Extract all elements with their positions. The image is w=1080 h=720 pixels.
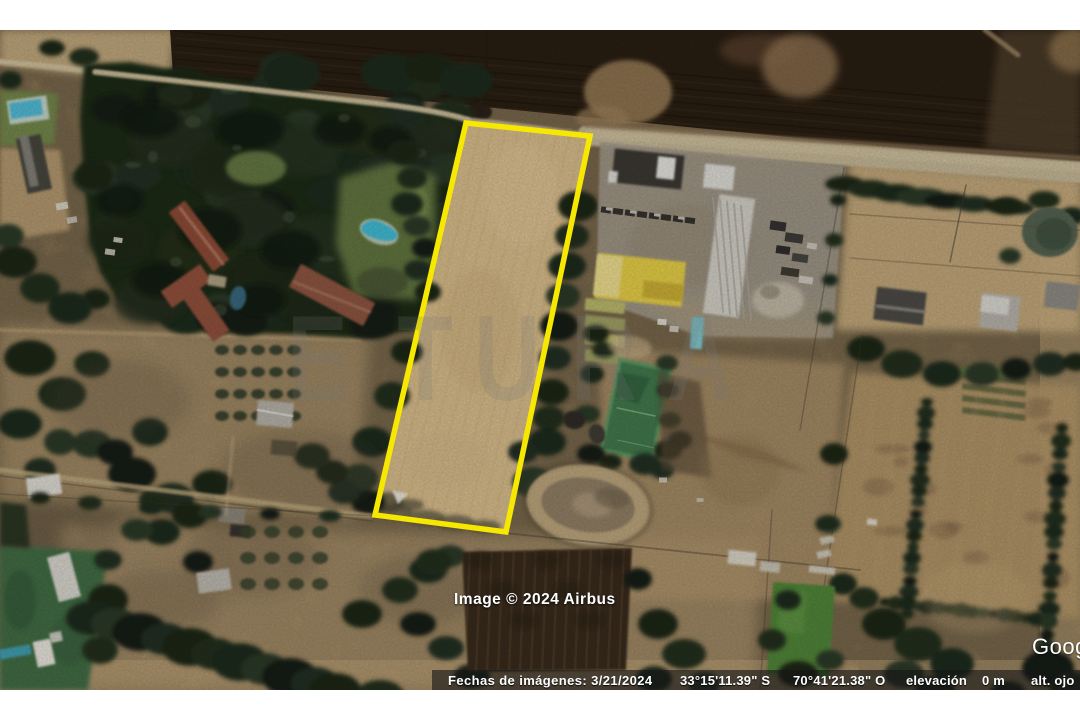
svg-text:elevación: elevación <box>906 673 967 688</box>
svg-text:U: U <box>474 289 540 426</box>
svg-text:alt. ojo: alt. ojo <box>1031 673 1075 688</box>
svg-text:Google: Google <box>1032 634 1080 659</box>
svg-text:R: R <box>571 289 637 426</box>
svg-text:Fechas de imágenes: 3/21/2024: Fechas de imágenes: 3/21/2024 <box>448 673 653 688</box>
svg-text:0 m: 0 m <box>982 673 1005 688</box>
svg-text:Image © 2024 Airbus: Image © 2024 Airbus <box>454 591 616 608</box>
svg-text:A: A <box>667 289 733 426</box>
svg-text:33°15'11.39" S: 33°15'11.39" S <box>680 673 770 688</box>
svg-text:T: T <box>397 289 453 426</box>
svg-text:70°41'21.38" O: 70°41'21.38" O <box>793 673 885 688</box>
svg-text:E: E <box>287 289 348 426</box>
